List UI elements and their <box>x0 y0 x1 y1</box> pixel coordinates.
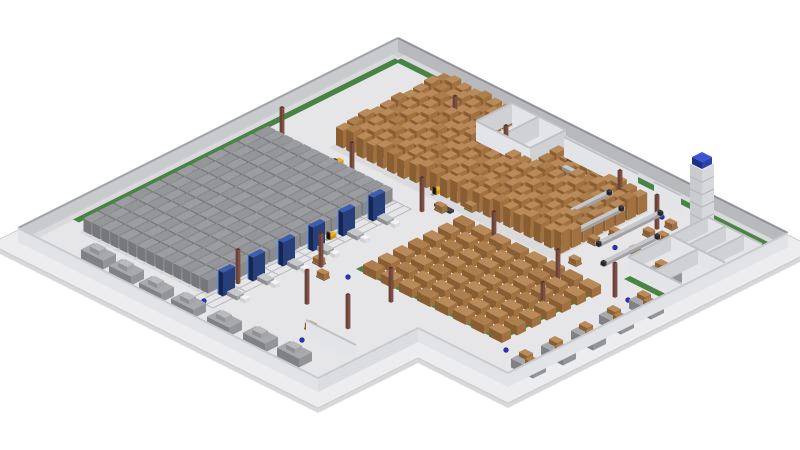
scene <box>0 0 800 450</box>
warehouse-3d-render <box>0 0 800 450</box>
